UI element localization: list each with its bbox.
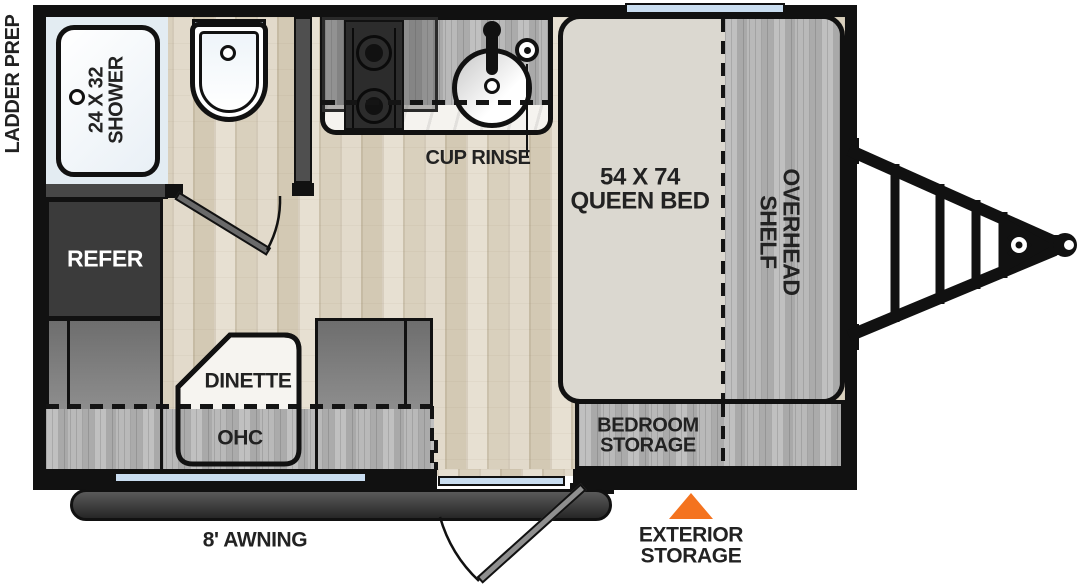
main-window (114, 472, 367, 483)
toilet-flush-button (220, 45, 236, 61)
dinette-label: DINETTE (204, 370, 291, 391)
exterior-storage-label: EXTERIOR STORAGE (639, 525, 743, 568)
a-frame-hitch (843, 128, 1078, 363)
bathroom-wall-right (294, 17, 312, 183)
cup-rinse-leader-line (526, 64, 528, 156)
ohc-label: OHC (217, 427, 262, 448)
bedroom-storage-dashed-divider (721, 404, 725, 468)
ohc-band-seam-right (315, 409, 318, 469)
exterior-storage-marker (669, 493, 713, 519)
bathroom-door-swing-arc (255, 190, 295, 260)
cooktop-grate-left (352, 28, 354, 128)
overhead-shelf-label: OVERHEAD SHELF (756, 168, 803, 295)
shower-label: 24 X 32 SHOWER (87, 56, 128, 144)
cup-rinse-center (524, 47, 531, 54)
bathroom-wall-lower (46, 184, 168, 199)
kitchen-ohc-dashed-line (322, 100, 551, 105)
faucet-knob-icon (483, 21, 501, 39)
sink-drain-icon (484, 78, 500, 94)
bedroom-storage-label: BEDROOM STORAGE (597, 416, 699, 457)
bed-shelf-dashed-divider (721, 19, 725, 399)
awning-label: 8' AWNING (203, 529, 307, 550)
shower-drain-icon (69, 89, 85, 105)
cup-rinse-label: CUP RINSE (426, 148, 531, 168)
ladder-prep-label: LADDER PREP (3, 15, 23, 154)
queen-bed-label: 54 X 74 QUEEN BED (570, 166, 709, 215)
ohc-band-seam-left (160, 409, 163, 469)
cooktop-grate-right (394, 28, 396, 128)
refrigerator-label: REFER (67, 247, 143, 270)
bathroom-wall-right-stub (292, 183, 314, 196)
floorplan-canvas: LADDER PREP 24 X 32 SHOWER (0, 0, 1078, 585)
bedroom-window (625, 3, 785, 14)
entry-door-swing-arc (380, 460, 630, 585)
toilet-bowl-inner (199, 31, 259, 113)
burner-front-center (365, 44, 383, 62)
